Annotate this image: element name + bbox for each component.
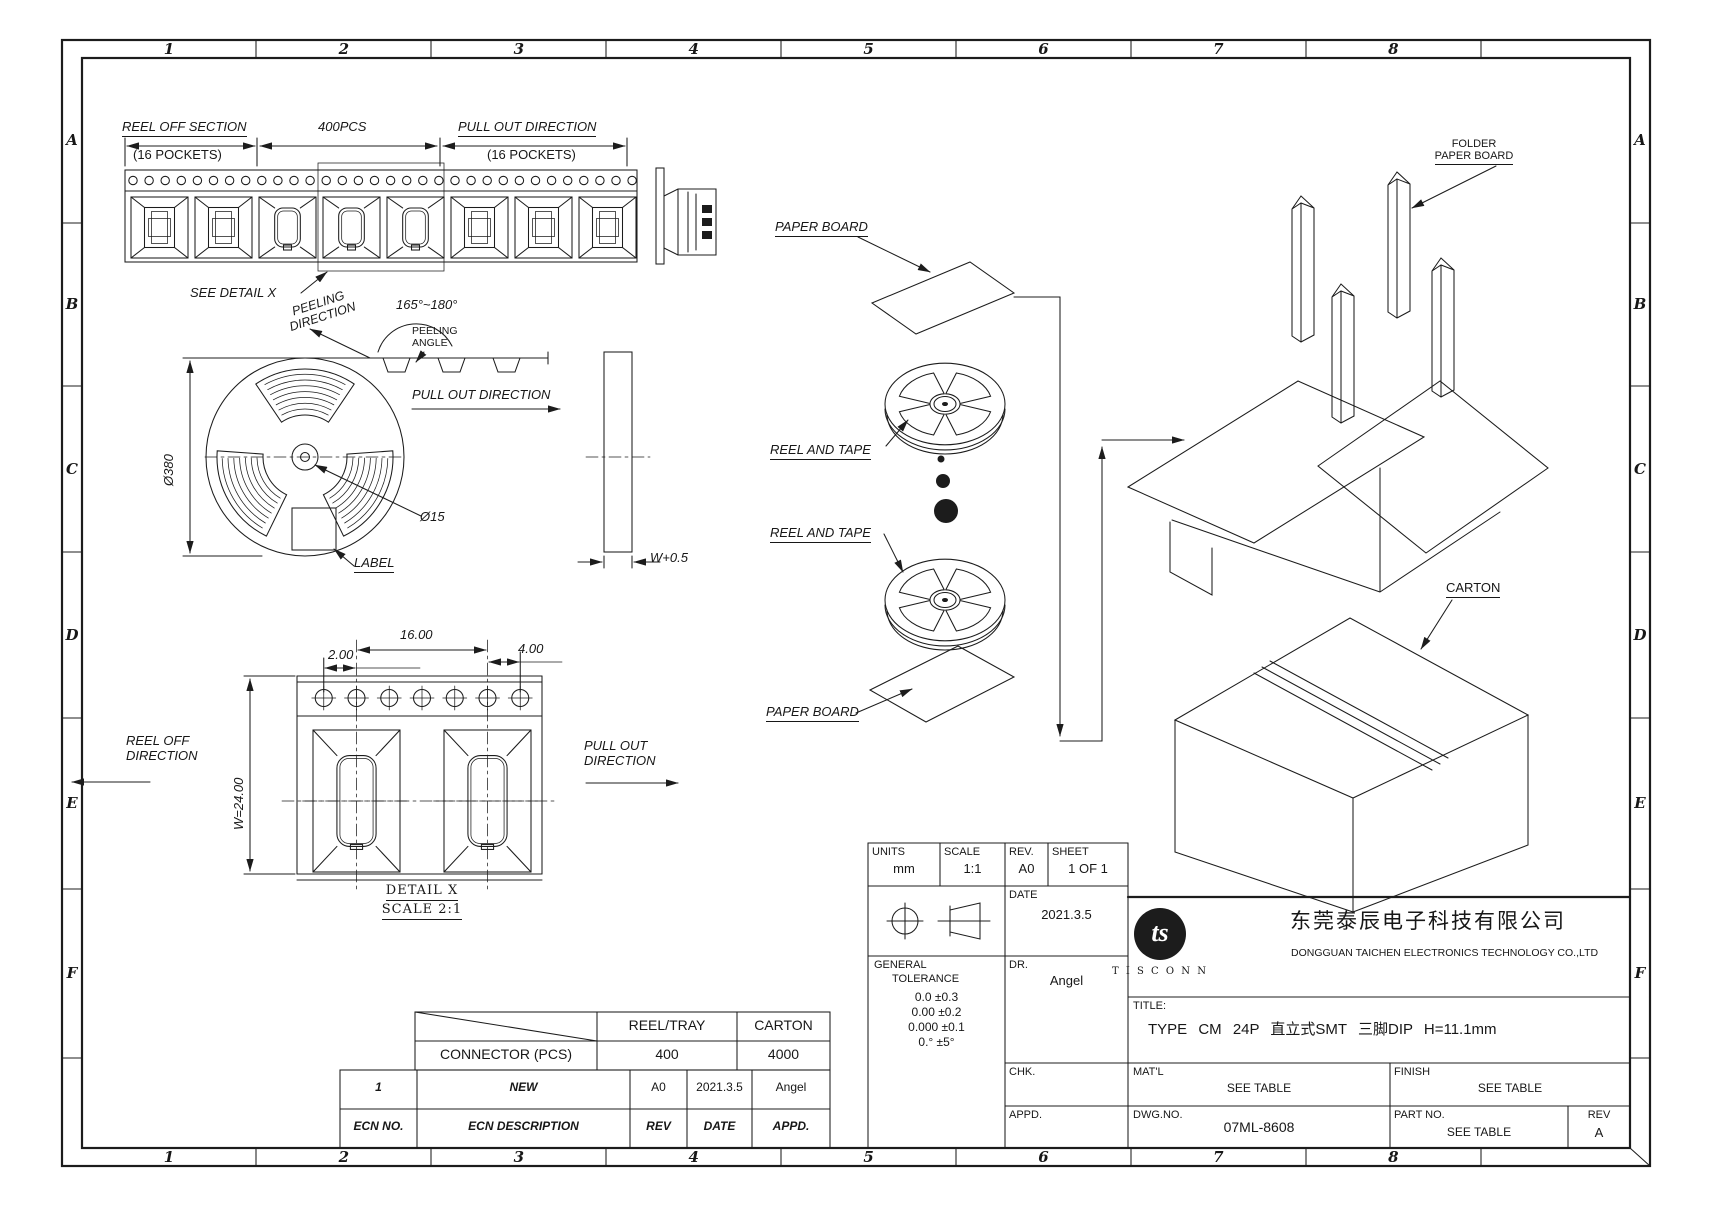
chk-label: CHK.	[1009, 1066, 1035, 1078]
zone-label: 3	[514, 40, 524, 58]
ecn-header-rev: REV	[630, 1120, 687, 1133]
zone-label: 8	[1388, 1148, 1398, 1166]
zone-label: 5	[863, 1148, 873, 1166]
matl-value: SEE TABLE	[1128, 1082, 1390, 1095]
tolerance-line-1: 0.0 ±0.3	[868, 991, 1005, 1004]
ecn-entry-appd: Angel	[752, 1081, 830, 1094]
tolerance-line-4: 0.° ±5°	[868, 1036, 1005, 1049]
finish-label: FINISH	[1394, 1066, 1430, 1078]
rev2-label: REV	[1568, 1109, 1630, 1121]
zone-label: C	[1634, 460, 1646, 478]
reel-pull-out-label: PULL OUT DIRECTION	[412, 388, 550, 403]
scale-label: SCALE	[944, 846, 980, 858]
pull-out-direction-label: PULL OUT DIRECTION	[458, 120, 596, 137]
reel-and-tape-1-label: REEL AND TAPE	[770, 443, 871, 460]
pull-out-pockets-label: (16 POCKETS)	[487, 148, 576, 163]
engineering-drawing-sheet: 1122334455667788AABBCCDDEEFF REEL OFF SE…	[0, 0, 1712, 1210]
qty-row-label: CONNECTOR (PCS)	[415, 1047, 597, 1063]
detail-pull-out-label: PULL OUT DIRECTION	[584, 739, 656, 768]
zone-label: 8	[1388, 40, 1398, 58]
zone-label: 6	[1038, 1148, 1048, 1166]
tolerance-title-2: TOLERANCE	[892, 973, 959, 985]
zone-label: F	[1635, 964, 1646, 982]
zone-label: B	[66, 295, 79, 313]
zone-label: A	[66, 131, 78, 149]
folder-paper-board-label: FOLDER PAPER BOARD	[1424, 138, 1524, 165]
zone-label: E	[66, 794, 77, 812]
ecn-entry-date: 2021.3.5	[687, 1081, 752, 1094]
tolerance-line-2: 0.00 ±0.2	[868, 1006, 1005, 1019]
ecn-header-no: ECN NO.	[340, 1120, 417, 1133]
ecn-entry-rev: A0	[630, 1081, 687, 1094]
hub-diameter-label: Ø15	[420, 510, 445, 525]
company-logo-name: T I S C O N N	[1112, 966, 1208, 977]
zone-label: 5	[863, 40, 873, 58]
appd-label: APPD.	[1009, 1109, 1042, 1121]
zone-label: 4	[688, 1148, 698, 1166]
scale-value: 1:1	[940, 862, 1005, 877]
paper-board-top-label: PAPER BOARD	[775, 220, 868, 237]
reel-and-tape-2-label: REEL AND TAPE	[770, 526, 871, 543]
company-name-en: DONGGUAN TAICHEN ELECTRONICS TECHNOLOGY …	[1291, 948, 1598, 960]
dim-2-label: 2.00	[328, 648, 353, 663]
units-value: mm	[868, 862, 940, 877]
reel-label-callout: LABEL	[354, 556, 394, 573]
dr-value: Angel	[1005, 974, 1128, 989]
detail-reel-off-label: REEL OFF DIRECTION	[126, 734, 198, 763]
qty-col-reel: REEL/TRAY	[597, 1018, 737, 1034]
reel-off-section-label: REEL OFF SECTION	[122, 120, 247, 137]
tolerance-line-3: 0.000 ±0.1	[868, 1021, 1005, 1034]
zone-label: 4	[688, 40, 698, 58]
qty-col-carton: CARTON	[737, 1018, 830, 1034]
zone-label: 1	[164, 40, 174, 58]
zone-label: E	[1634, 794, 1645, 812]
zone-label: D	[1633, 626, 1646, 644]
zone-label: 1	[164, 1148, 174, 1166]
title-label: TITLE:	[1133, 1000, 1166, 1012]
rev2-value: A	[1568, 1126, 1630, 1141]
dr-label: DR.	[1009, 959, 1028, 971]
see-detail-x-label: SEE DETAIL X	[190, 286, 276, 301]
qty-400pcs-label: 400PCS	[318, 120, 366, 135]
company-name-cn: 东莞泰辰电子科技有限公司	[1290, 910, 1566, 934]
sheet-label: SHEET	[1052, 846, 1089, 858]
reel-diameter-label: Ø380	[162, 454, 177, 486]
reel-off-pockets-label: (16 POCKETS)	[133, 148, 222, 163]
rev-label: REV.	[1009, 846, 1034, 858]
rev-value: A0	[1005, 862, 1048, 877]
dwg-no-value: 07ML-8608	[1128, 1120, 1390, 1136]
ecn-header-appd: APPD.	[752, 1120, 830, 1133]
date-value: 2021.3.5	[1005, 908, 1128, 923]
peeling-angle-label: PEELING ANGLE	[412, 326, 458, 350]
drawing-title: TYPE CM 24P 直立式SMT 三脚DIP H=11.1mm	[1148, 1022, 1497, 1039]
ecn-entry-no: 1	[340, 1081, 417, 1094]
tape-width-label: W+0.5	[650, 551, 688, 566]
sheet-value: 1 OF 1	[1048, 862, 1128, 877]
dim-16-label: 16.00	[400, 628, 433, 643]
date-label: DATE	[1009, 889, 1038, 901]
zone-label: 2	[339, 1148, 349, 1166]
finish-value: SEE TABLE	[1390, 1082, 1630, 1095]
company-logo-monogram: ts	[1134, 918, 1186, 948]
paper-board-bottom-label: PAPER BOARD	[766, 705, 859, 722]
peeling-angle-range-label: 165°~180°	[396, 298, 457, 313]
zone-label: 7	[1213, 1148, 1223, 1166]
carton-label: CARTON	[1446, 581, 1500, 598]
qty-carton-value: 4000	[737, 1047, 830, 1063]
detail-scale-caption: SCALE 2:1	[372, 903, 472, 920]
detail-caption: DETAIL X	[372, 884, 472, 901]
ecn-entry-desc: NEW	[417, 1081, 630, 1094]
zone-label: D	[65, 626, 78, 644]
ecn-header-date: DATE	[687, 1120, 752, 1133]
part-no-value: SEE TABLE	[1390, 1126, 1568, 1139]
zone-label: 6	[1038, 40, 1048, 58]
dim-w24-label: W=24.00	[232, 778, 247, 830]
tolerance-title-1: GENERAL	[874, 959, 927, 971]
part-no-label: PART NO.	[1394, 1109, 1445, 1121]
dim-4-label: 4.00	[518, 642, 543, 657]
zone-label: A	[1634, 131, 1646, 149]
zone-label: C	[66, 460, 78, 478]
matl-label: MAT'L	[1133, 1066, 1164, 1078]
zone-label: 2	[339, 40, 349, 58]
qty-reel-value: 400	[597, 1047, 737, 1063]
zone-label: 7	[1213, 40, 1223, 58]
zone-label: B	[1634, 295, 1647, 313]
zone-label: 3	[514, 1148, 524, 1166]
zone-label: F	[67, 964, 78, 982]
units-label: UNITS	[872, 846, 905, 858]
ecn-header-desc: ECN DESCRIPTION	[417, 1120, 630, 1133]
